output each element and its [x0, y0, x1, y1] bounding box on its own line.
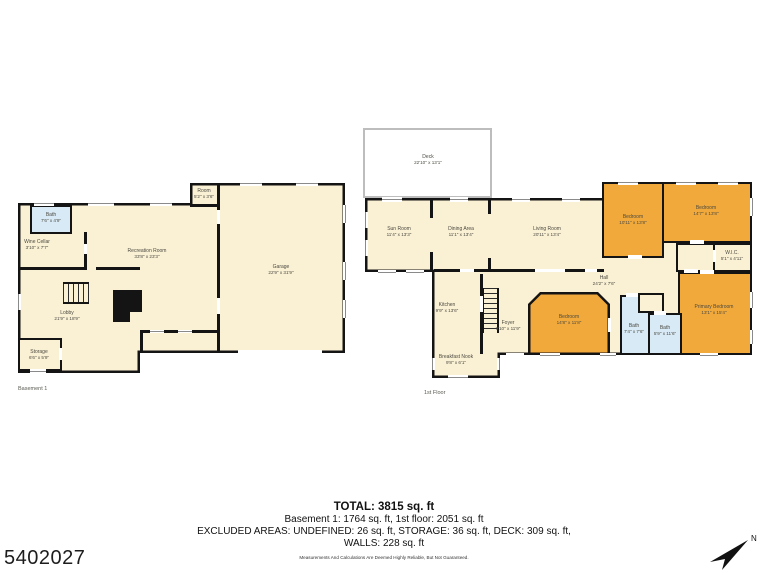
room	[648, 313, 682, 355]
room	[676, 243, 715, 272]
wall	[430, 252, 433, 272]
floor-caption: Basement 1	[18, 386, 47, 392]
staircase	[482, 288, 499, 333]
walls-area-text: WALLS: 228 sq. ft	[0, 538, 768, 550]
window	[600, 353, 616, 358]
wall	[488, 200, 491, 214]
window	[34, 201, 54, 206]
window	[750, 330, 755, 344]
window	[343, 262, 348, 280]
door-opening	[700, 270, 714, 274]
door-opening	[608, 318, 611, 332]
window	[618, 180, 638, 185]
north-arrow-icon: N	[704, 530, 762, 574]
wall	[190, 204, 220, 207]
window	[700, 353, 718, 358]
staircase	[63, 282, 89, 304]
window	[240, 181, 262, 186]
room	[602, 182, 664, 258]
window	[363, 212, 368, 228]
window	[150, 201, 172, 206]
wall	[96, 267, 140, 270]
wall	[140, 330, 143, 353]
room	[678, 272, 752, 355]
floor-caption: 1st Floor	[424, 390, 445, 396]
window	[718, 180, 738, 185]
door-opening	[535, 269, 565, 272]
door-opening	[654, 311, 666, 315]
door-opening	[713, 250, 716, 262]
window	[343, 300, 348, 318]
door-opening	[84, 244, 87, 254]
floor-areas-text: Basement 1: 1764 sq. ft, 1st floor: 2051…	[0, 514, 768, 526]
window	[512, 197, 530, 202]
window	[450, 197, 468, 202]
window	[16, 294, 21, 310]
door-opening	[684, 269, 698, 273]
door-opening	[628, 255, 642, 259]
chimney-mass	[113, 312, 130, 322]
room	[638, 293, 664, 313]
window	[150, 330, 164, 333]
window	[363, 240, 368, 256]
window	[178, 330, 192, 333]
window	[562, 197, 580, 202]
window	[676, 180, 696, 185]
disclaimer-text: Measurements And Calculations Are Deemed…	[0, 555, 768, 560]
listing-id: 5402027	[4, 547, 85, 570]
room	[662, 182, 752, 243]
door-opening	[690, 240, 704, 244]
door-opening	[238, 350, 322, 354]
total-area-text: TOTAL: 3815 sq. ft	[0, 501, 768, 514]
chimney-mass	[113, 290, 142, 312]
window	[750, 292, 755, 308]
north-label: N	[751, 534, 757, 543]
door-opening	[626, 293, 638, 297]
window	[540, 353, 560, 358]
door-opening	[506, 353, 524, 357]
door-opening	[460, 269, 474, 272]
door-opening	[585, 269, 597, 272]
room	[18, 338, 62, 371]
floorplan-canvas: TOTAL: 3815 sq. ft Basement 1: 1764 sq. …	[0, 0, 768, 576]
window	[296, 181, 318, 186]
window	[497, 358, 502, 370]
window	[750, 198, 755, 216]
window	[448, 375, 468, 380]
wall	[488, 258, 491, 272]
window	[30, 369, 46, 374]
window	[382, 197, 402, 202]
wall	[20, 267, 86, 270]
window	[430, 358, 435, 370]
wall	[430, 200, 433, 218]
door-opening	[480, 296, 483, 312]
excluded-areas-text: EXCLUDED AREAS: UNDEFINED: 26 sq. ft, ST…	[0, 526, 768, 538]
window	[406, 270, 424, 275]
door-opening	[217, 298, 220, 314]
door-opening	[59, 348, 62, 360]
door-opening	[217, 210, 220, 224]
area-summary: TOTAL: 3815 sq. ft Basement 1: 1764 sq. …	[0, 501, 768, 560]
room	[30, 205, 72, 234]
window	[343, 205, 348, 223]
deck-area	[363, 128, 492, 198]
window	[88, 201, 114, 206]
room	[713, 243, 752, 272]
window	[378, 270, 396, 275]
